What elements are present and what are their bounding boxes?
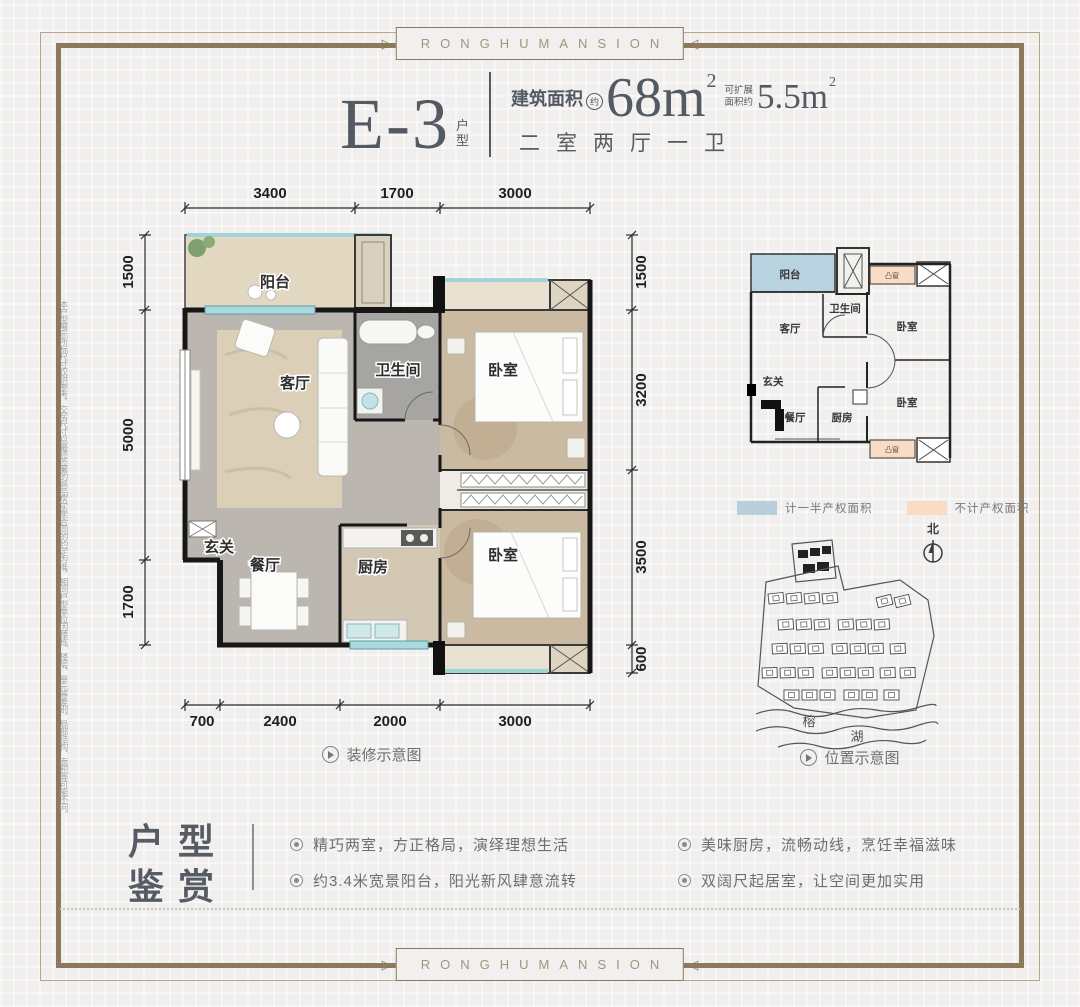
arrow-right-icon: ▷	[382, 958, 392, 971]
area-value-sup: 2	[707, 70, 717, 93]
highlight-building	[810, 548, 820, 556]
s-label-dining: 餐厅	[784, 411, 806, 424]
sink	[347, 624, 371, 638]
chair	[239, 606, 251, 626]
chair	[239, 578, 251, 598]
brand-name: RONGHUMANSION	[396, 948, 684, 981]
play-icon	[322, 746, 339, 763]
decor-pebble	[266, 290, 276, 300]
header: E-3 户型 建筑面积 约 68m 2 可扩展 面积约 5.5m 2 二室两厅一…	[340, 70, 836, 157]
pillow	[563, 578, 577, 611]
feature-text-3: 美味厨房，流畅动线，烹饪幸福滋味	[701, 834, 957, 855]
brand-banner-bottom: ▷ RONGHUMANSION ◁	[352, 948, 728, 981]
dim-left-3: 1700	[120, 585, 137, 618]
bullseye-icon	[678, 838, 691, 851]
bathtub	[359, 320, 417, 344]
s-label-bay-top: 凸窗	[885, 271, 899, 280]
features-title-line1: 户型	[128, 820, 228, 865]
dim-right-3: 3500	[633, 540, 650, 573]
expand-value-sup: 2	[829, 75, 836, 91]
unit-code: E-3	[340, 92, 450, 157]
approx-badge: 约	[586, 93, 603, 110]
feature-text-4: 双阔尺起居室，让空间更加实用	[701, 870, 925, 891]
dim-bottom-2: 2400	[263, 713, 296, 730]
sofa	[318, 338, 348, 476]
door-arc	[823, 315, 845, 337]
banner-line	[352, 43, 378, 45]
wall-pier	[433, 641, 445, 675]
s-label-kitchen: 厨房	[832, 411, 853, 424]
highlight-building	[822, 546, 831, 554]
s-label-bedroom2: 卧室	[897, 396, 918, 409]
main-plan-caption: 装修示意图	[222, 744, 522, 765]
dining-table	[251, 572, 297, 630]
expand-area-value: 5.5m	[757, 81, 828, 113]
legend-item-excluded: 不计产权面积	[907, 500, 1030, 516]
legend-label-excluded: 不计产权面积	[955, 500, 1030, 516]
room-label-kitchen: 厨房	[358, 558, 388, 576]
room-label-balcony: 阳台	[260, 273, 290, 291]
burner	[406, 534, 414, 542]
site-map-caption: 位置示意图	[700, 747, 1000, 768]
s-label-bay-bottom: 凸窗	[885, 445, 899, 454]
nightstand	[447, 622, 465, 638]
chair	[297, 606, 309, 626]
dim-right-4: 600	[633, 646, 650, 671]
floorplan-poster: ▷ RONGHUMANSION ◁ E-3 户型 建筑面积 约 68m 2 可扩…	[0, 0, 1080, 1007]
legend-swatch-peach	[907, 501, 947, 515]
expand-label-line2: 面积约	[725, 97, 754, 108]
arrow-right-icon: ▷	[382, 37, 392, 50]
fridge	[853, 390, 867, 404]
tv-console	[191, 370, 200, 470]
pillow	[563, 338, 577, 373]
kitchen-window	[350, 641, 428, 649]
bullseye-icon	[678, 874, 691, 887]
dim-top-2: 1700	[380, 185, 413, 202]
door-arc	[867, 360, 895, 388]
feature-bullet-2: 约3.4米宽景阳台，阳光新风肆意流转	[290, 870, 577, 891]
balcony-door-glass	[205, 306, 315, 314]
bullseye-icon	[290, 874, 303, 887]
unit-code-suffix: 户型	[456, 119, 471, 149]
features-title: 户型 鉴赏	[128, 820, 228, 910]
features-title-line2: 鉴赏	[128, 865, 228, 910]
area-row: 建筑面积 约 68m 2 可扩展 面积约 5.5m 2	[511, 70, 836, 123]
main-plan-caption-text: 装修示意图	[346, 744, 421, 765]
lake-label-1: 榕	[802, 714, 817, 729]
s-label-bedroom1: 卧室	[897, 320, 918, 333]
dim-bottom-1: 700	[189, 713, 214, 730]
banner-line	[702, 964, 728, 966]
header-divider	[489, 72, 491, 157]
arrow-left-icon: ◁	[688, 37, 698, 50]
plant	[203, 236, 215, 248]
site-map-caption-text: 位置示意图	[824, 747, 899, 768]
bay-window-top	[440, 280, 550, 310]
wall-pier	[747, 384, 756, 396]
expand-label-line1: 可扩展	[725, 85, 754, 96]
estate-buildings	[762, 592, 915, 700]
dim-left-1: 1500	[120, 255, 137, 288]
legend-swatch-blue	[737, 501, 777, 515]
room-label-entry: 玄关	[204, 538, 234, 556]
feature-bullet-4: 双阔尺起居室，让空间更加实用	[678, 870, 925, 891]
main-floor-plan-svg: 3400 1700 3000 1500 5000 1700 1500 3200 …	[105, 180, 675, 735]
s-label-bathroom: 卫生间	[829, 302, 861, 315]
dim-right-1: 1500	[633, 255, 650, 288]
feature-text-2: 约3.4米宽景阳台，阳光新风肆意流转	[313, 870, 577, 891]
room-label-bathroom: 卫生间	[375, 361, 420, 379]
bay-window-top-glass	[442, 278, 548, 282]
entry-step	[761, 400, 781, 409]
feature-text-1: 精巧两室，方正格局，演绎理想生活	[313, 834, 569, 855]
legend-label-half: 计一半产权面积	[785, 500, 873, 516]
north-label: 北	[905, 520, 961, 537]
brand-banner-top: ▷ RONGHUMANSION ◁	[352, 27, 728, 60]
feature-bullet-3: 美味厨房，流畅动线，烹饪幸福滋味	[678, 834, 957, 855]
chair	[297, 578, 309, 598]
washbasin-bowl	[362, 393, 378, 409]
main-floor-plan: 3400 1700 3000 1500 5000 1700 1500 3200 …	[105, 180, 675, 740]
s-label-balcony: 阳台	[780, 268, 801, 281]
schematic-plan: 阳台 客厅 卫生间 卧室 卧室 玄关 餐厅 厨房 凸窗 凸窗	[745, 242, 1045, 477]
side-table	[567, 438, 585, 458]
lake-label-2: 湖	[850, 729, 865, 744]
entry-step	[775, 409, 784, 431]
expand-area-label: 可扩展 面积约	[725, 85, 754, 109]
dim-left-2: 5000	[120, 418, 137, 451]
feature-bullet-1: 精巧两室，方正格局，演绎理想生活	[290, 834, 569, 855]
room-label-bedroom2: 卧室	[488, 546, 518, 564]
bay-window-bottom	[440, 645, 550, 673]
room-label-living: 客厅	[279, 374, 310, 392]
dim-top-3: 3000	[498, 185, 531, 202]
features-divider	[252, 824, 254, 890]
room-label-bedroom1: 卧室	[488, 361, 518, 379]
area-legend: 计一半产权面积 不计产权面积	[737, 500, 1030, 516]
door-arc	[867, 334, 895, 362]
highlight-building	[798, 550, 808, 558]
sink	[375, 624, 399, 638]
coffee-table	[274, 412, 300, 438]
bullseye-icon	[290, 838, 303, 851]
banner-line	[702, 43, 728, 45]
duct-shaft	[355, 235, 391, 310]
pillow	[563, 538, 577, 571]
dim-top-1: 3400	[253, 185, 286, 202]
pillow	[563, 380, 577, 415]
area-label: 建筑面积	[511, 85, 583, 111]
burner	[420, 534, 428, 542]
area-block: 建筑面积 约 68m 2 可扩展 面积约 5.5m 2 二室两厅一卫	[511, 70, 836, 157]
room-label-dining: 餐厅	[250, 556, 280, 574]
arrow-left-icon: ◁	[688, 958, 698, 971]
bay-window-bottom-glass	[442, 669, 548, 673]
room-layout-text: 二室两厅一卫	[511, 127, 836, 157]
play-icon	[800, 749, 817, 766]
s-label-living: 客厅	[779, 322, 801, 335]
schematic-plan-svg: 阳台 客厅 卫生间 卧室 卧室 玄关 餐厅 厨房 凸窗 凸窗	[745, 242, 1045, 472]
dim-right-2: 3200	[633, 373, 650, 406]
site-map-svg: 榕 湖	[748, 538, 1048, 773]
disclaimer-text: 本户型展示所标尺寸仅供参考，交房尺寸以最终签署的商品房买卖合同的约定为准，相同户…	[58, 300, 70, 958]
stove	[401, 530, 433, 546]
nightstand	[447, 338, 465, 354]
unit-title: E-3 户型	[340, 70, 471, 157]
s-label-entry: 玄关	[763, 375, 784, 388]
toilet	[417, 325, 435, 339]
legend-item-half: 计一半产权面积	[737, 500, 873, 516]
wall-pier	[433, 276, 445, 312]
site-map: 榕 湖	[748, 538, 1048, 778]
brand-name: RONGHUMANSION	[396, 27, 684, 60]
banner-line	[352, 964, 378, 966]
dim-bottom-4: 3000	[498, 713, 531, 730]
dim-bottom-3: 2000	[373, 713, 406, 730]
area-value: 68m	[606, 75, 706, 123]
lake-wave	[756, 722, 938, 734]
dotted-separator	[60, 908, 1020, 910]
